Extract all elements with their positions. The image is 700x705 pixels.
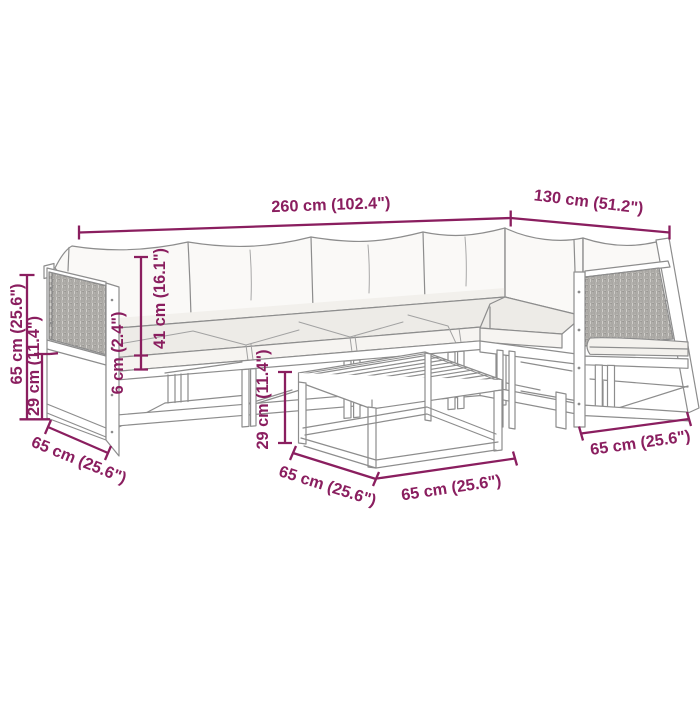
svg-text:41 cm (16.1"): 41 cm (16.1") xyxy=(151,248,169,349)
svg-text:65 cm (25.6"): 65 cm (25.6") xyxy=(8,284,26,385)
svg-text:29 cm (11.4"): 29 cm (11.4") xyxy=(25,316,43,416)
svg-text:29 cm (11.4"): 29 cm (11.4") xyxy=(254,349,272,449)
svg-text:6 cm (2.4"): 6 cm (2.4") xyxy=(109,312,127,395)
